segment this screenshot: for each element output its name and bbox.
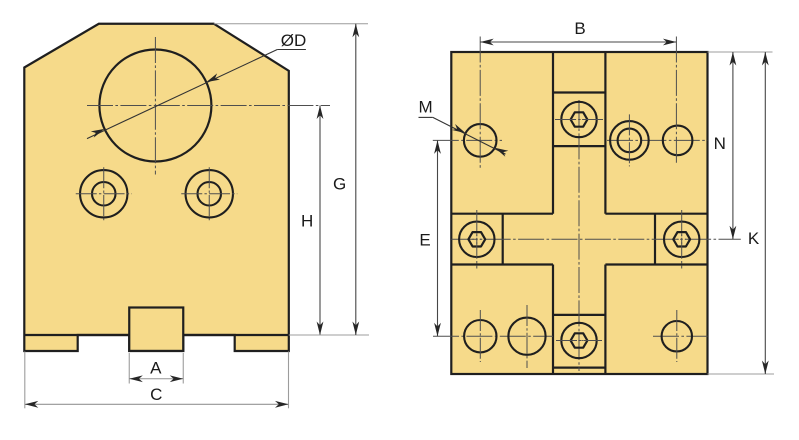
svg-text:K: K [748, 229, 760, 248]
svg-text:C: C [150, 385, 162, 404]
svg-text:A: A [150, 359, 162, 378]
svg-text:N: N [714, 134, 726, 153]
svg-text:G: G [333, 175, 346, 194]
svg-text:E: E [419, 230, 430, 249]
svg-text:B: B [574, 19, 585, 38]
svg-text:M: M [419, 98, 433, 117]
svg-text:ØD: ØD [281, 31, 307, 50]
svg-text:H: H [301, 212, 313, 231]
